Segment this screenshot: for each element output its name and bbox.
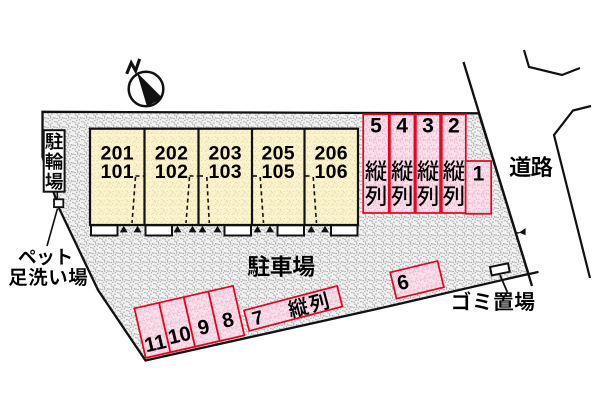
svg-text:101: 101 bbox=[100, 161, 133, 183]
svg-text:106: 106 bbox=[314, 161, 347, 183]
svg-text:105: 105 bbox=[261, 161, 294, 183]
svg-text:3: 3 bbox=[422, 115, 434, 138]
svg-text:2: 2 bbox=[448, 115, 460, 138]
svg-text:5: 5 bbox=[370, 115, 382, 138]
svg-text:103: 103 bbox=[208, 161, 241, 183]
svg-text:102: 102 bbox=[155, 161, 188, 183]
svg-text:1: 1 bbox=[473, 163, 485, 186]
svg-text:4: 4 bbox=[396, 115, 408, 138]
